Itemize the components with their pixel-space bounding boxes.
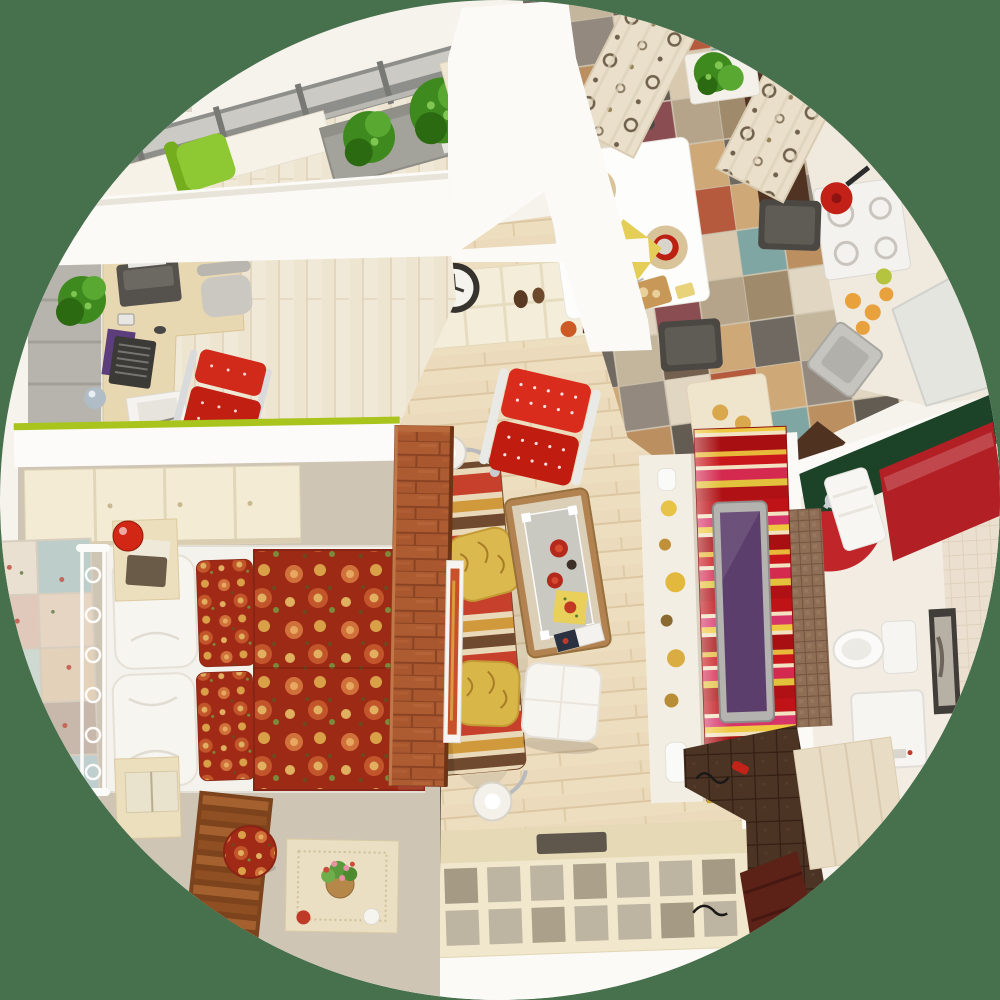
mouse bbox=[154, 326, 166, 334]
framed-picture bbox=[929, 608, 961, 714]
floral-pillow bbox=[196, 559, 256, 667]
floor-plan-render: Top-down 3D render of a small studio apa… bbox=[0, 0, 1000, 1000]
floral-ottoman bbox=[224, 826, 276, 878]
nightstand-bottom bbox=[115, 757, 182, 839]
tablet bbox=[125, 555, 167, 588]
circular-crop bbox=[0, 0, 1000, 1000]
flower-table bbox=[285, 839, 399, 933]
wall-tv bbox=[713, 501, 775, 723]
dining-chair bbox=[758, 199, 822, 251]
desk-phone bbox=[118, 314, 134, 325]
yellow-napkin bbox=[553, 590, 588, 625]
leaning-picture bbox=[444, 560, 464, 742]
white-dish bbox=[363, 908, 379, 924]
white-figurine bbox=[657, 468, 676, 491]
bedroom-wall bbox=[14, 417, 401, 468]
floral-pillow bbox=[196, 671, 256, 781]
media-unit-device bbox=[536, 832, 607, 854]
yellow-cushion bbox=[454, 660, 520, 726]
sphere-lamp bbox=[84, 387, 106, 409]
desk-chair bbox=[196, 259, 255, 318]
dining-chair bbox=[658, 318, 723, 372]
